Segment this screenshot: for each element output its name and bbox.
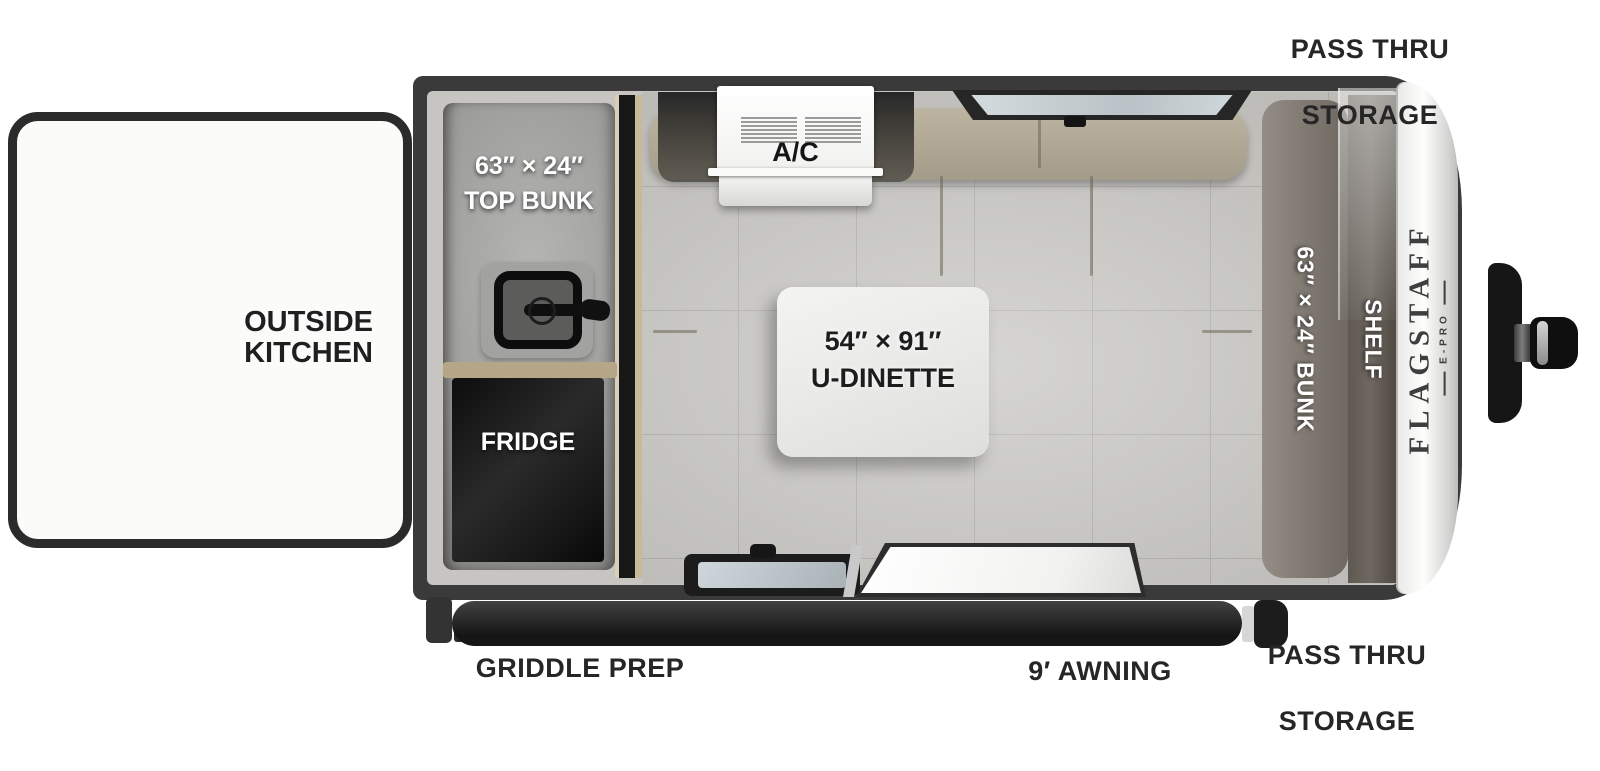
hitch-coupler-highlight: [1537, 321, 1548, 365]
cushion-seam: [653, 330, 697, 333]
ac-lower-housing: [719, 176, 872, 206]
cushion-seam: [940, 176, 943, 276]
brand-dash-right: [1444, 280, 1446, 304]
ac-flange: [708, 168, 883, 176]
brand-model: E-PRO: [1439, 221, 1450, 454]
label-pass-thru-storage-bottom: PASS THRU STORAGE: [1247, 606, 1447, 771]
label-griddle-prep: GRIDDLE PREP: [420, 652, 740, 685]
label-line: 63″ × 24″ BUNK: [1292, 246, 1319, 432]
label-line: U-DINETTE: [777, 360, 989, 397]
label-u-dinette: 54″ × 91″ U-DINETTE: [777, 323, 989, 397]
window-latch: [1064, 116, 1086, 127]
brand-dash-left: [1444, 372, 1446, 396]
cushion-seam: [1090, 176, 1093, 276]
label-outside-kitchen: OUTSIDE KITCHEN: [244, 307, 373, 369]
brand-name: FLAGSTAFF: [1404, 221, 1437, 454]
stabilizer-foot: [426, 597, 452, 643]
divider-wall: [615, 95, 642, 578]
fridge-counter-trim: [443, 362, 617, 378]
label-line: TOP BUNK: [443, 184, 615, 219]
griddle-prep-latch: [750, 544, 776, 558]
label-line: SHELF: [1360, 299, 1387, 379]
sink-drain-ring: [528, 297, 556, 325]
label-line: OUTSIDE: [244, 307, 373, 338]
cushion-seam: [1038, 120, 1041, 168]
label-line: 54″ × 91″: [777, 323, 989, 360]
floorplan-page: { "diagram": { "type": "rv-floorplan", "…: [0, 0, 1600, 687]
label-top-bunk: 63″ × 24″ TOP BUNK: [443, 149, 615, 219]
label-rear-bunk: 63″ × 24″ BUNK: [1262, 100, 1348, 578]
label-shelf: SHELF: [1348, 95, 1398, 583]
label-ac: A/C: [717, 137, 874, 168]
cushion-seam: [1202, 330, 1252, 333]
fridge: [452, 378, 604, 562]
label-line: PASS THRU: [1270, 33, 1470, 66]
label-fridge: FRIDGE: [452, 428, 604, 457]
window-top-glass: [966, 95, 1238, 115]
brand-block: FLAGSTAFF E-PRO: [1404, 221, 1450, 454]
label-pass-thru-storage-top: PASS THRU STORAGE: [1270, 0, 1470, 165]
label-line: PASS THRU: [1247, 639, 1447, 672]
label-line: 63″ × 24″: [443, 149, 615, 184]
label-line: STORAGE: [1247, 705, 1447, 738]
griddle-prep-glass: [698, 562, 846, 588]
entry-door: [861, 547, 1141, 593]
outside-kitchen-panel: OUTSIDE KITCHEN: [8, 112, 412, 548]
awning-roller: [452, 601, 1242, 646]
label-line: KITCHEN: [244, 338, 373, 369]
label-line: STORAGE: [1270, 99, 1470, 132]
label-awning: 9′ AWNING: [960, 655, 1240, 688]
brand-model-text: E-PRO: [1439, 312, 1450, 364]
